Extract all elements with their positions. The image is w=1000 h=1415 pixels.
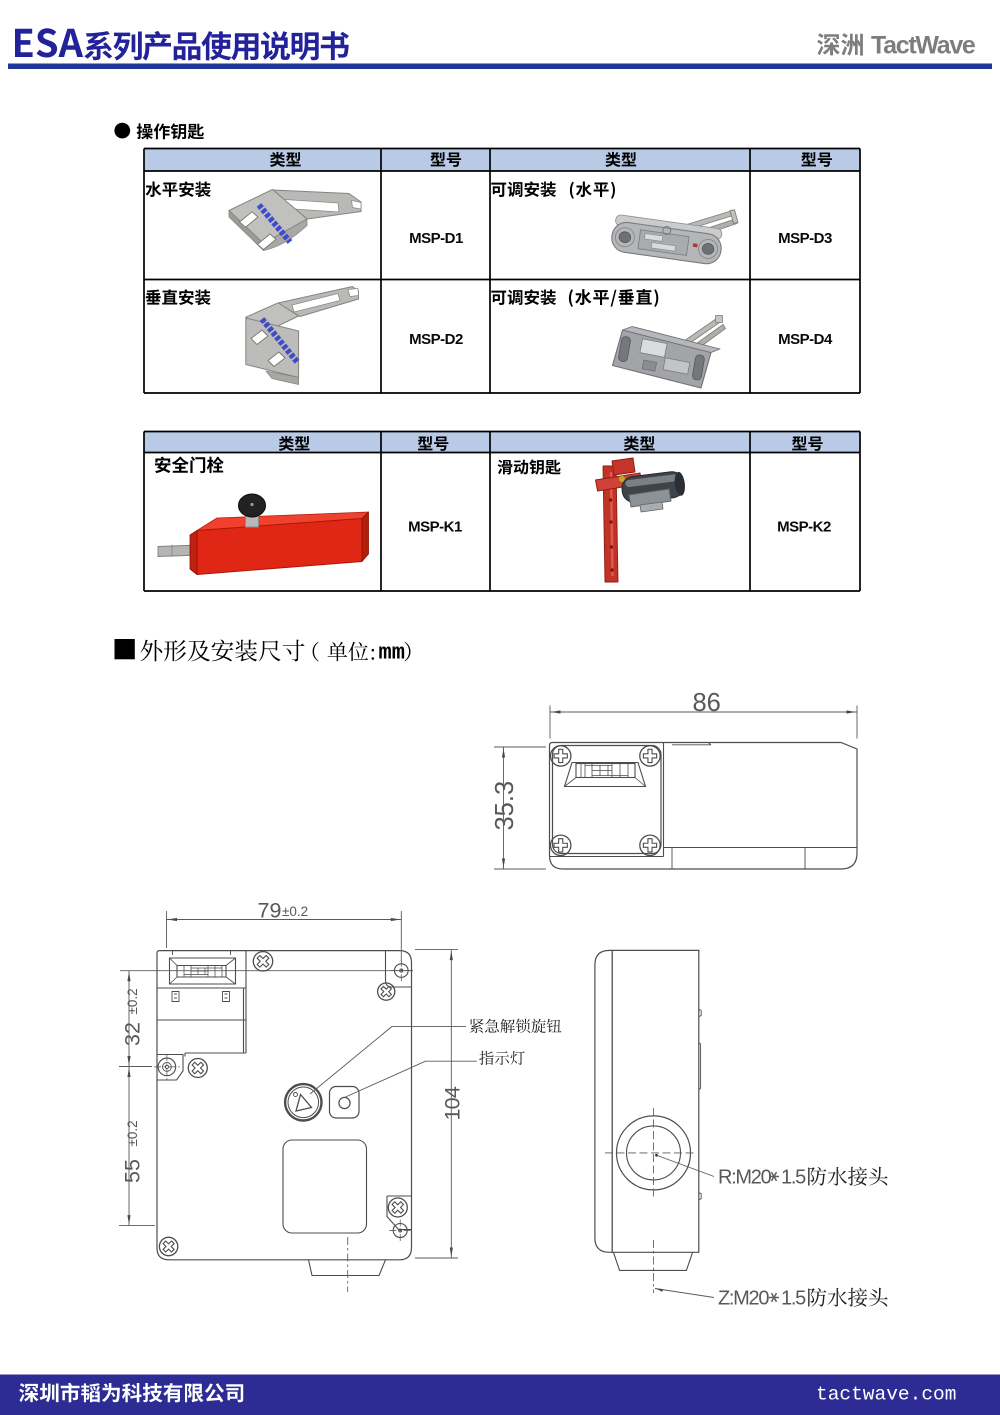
svg-text:79: 79 <box>258 899 282 923</box>
svg-text:MSP-K1: MSP-K1 <box>408 518 462 535</box>
svg-text:104: 104 <box>441 1086 465 1120</box>
svg-text:TactWave: TactWave <box>871 32 976 60</box>
svg-text:1.5: 1.5 <box>781 1167 806 1189</box>
svg-text:55: 55 <box>121 1159 145 1183</box>
svg-text:R:M20: R:M20 <box>718 1167 772 1189</box>
svg-text:MSP-D4: MSP-D4 <box>778 331 833 348</box>
svg-text:1.5: 1.5 <box>781 1288 806 1310</box>
svg-text:MSP-K2: MSP-K2 <box>777 518 831 535</box>
svg-text:±0.2: ±0.2 <box>282 904 308 919</box>
svg-text:MSP-D2: MSP-D2 <box>409 331 463 348</box>
svg-text:±0.2: ±0.2 <box>125 988 140 1014</box>
svg-text:±0.2: ±0.2 <box>125 1120 140 1146</box>
svg-text:Z:M20: Z:M20 <box>718 1288 769 1310</box>
svg-text:35.3: 35.3 <box>491 781 519 831</box>
svg-text:tactwave.com: tactwave.com <box>816 1384 956 1406</box>
svg-text:mm: mm <box>379 641 405 666</box>
svg-text:32: 32 <box>121 1022 145 1046</box>
svg-text:MSP-D3: MSP-D3 <box>778 230 832 247</box>
svg-text:MSP-D1: MSP-D1 <box>409 230 463 247</box>
svg-text:86: 86 <box>693 689 721 717</box>
